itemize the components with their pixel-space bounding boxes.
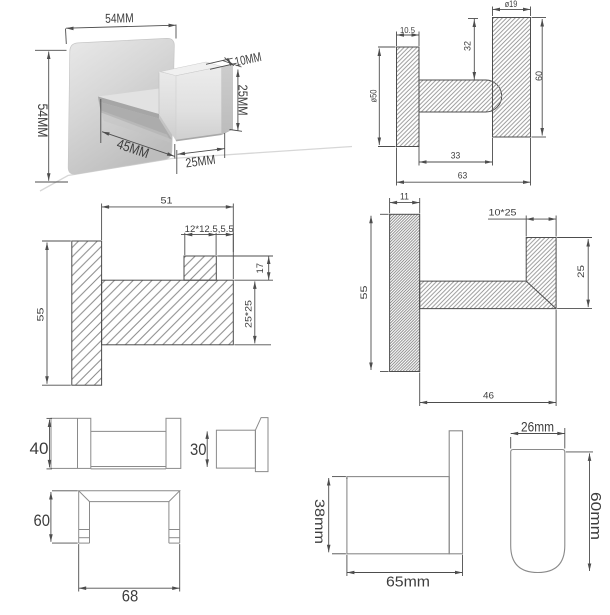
svg-text:ø19: ø19 [505, 0, 518, 9]
svg-text:46: 46 [483, 391, 494, 402]
svg-text:12*12.5,5.5: 12*12.5,5.5 [185, 224, 234, 234]
svg-text:33: 33 [451, 151, 461, 161]
svg-text:10.5: 10.5 [400, 25, 415, 35]
svg-text:68: 68 [122, 587, 139, 606]
svg-text:11: 11 [400, 192, 409, 203]
svg-text:25*25: 25*25 [244, 300, 254, 328]
svg-text:38mm: 38mm [312, 499, 328, 544]
svg-text:ø50: ø50 [369, 90, 379, 103]
svg-text:65mm: 65mm [386, 574, 430, 591]
svg-text:32: 32 [463, 41, 473, 51]
svg-text:25MM: 25MM [236, 85, 251, 116]
svg-text:54MM: 54MM [105, 10, 134, 26]
svg-text:10*25: 10*25 [489, 208, 517, 218]
svg-text:60mm: 60mm [587, 492, 604, 540]
svg-text:60: 60 [534, 71, 544, 81]
svg-text:17: 17 [255, 263, 266, 274]
svg-text:60: 60 [34, 511, 51, 530]
svg-text:25: 25 [576, 265, 587, 278]
svg-text:30: 30 [190, 440, 207, 459]
svg-text:51: 51 [161, 196, 173, 207]
svg-text:55: 55 [36, 308, 47, 322]
svg-text:54MM: 54MM [35, 104, 50, 138]
svg-text:40: 40 [30, 439, 49, 458]
svg-text:55: 55 [359, 286, 370, 300]
svg-text:26mm: 26mm [521, 420, 554, 435]
svg-text:63: 63 [458, 171, 468, 181]
